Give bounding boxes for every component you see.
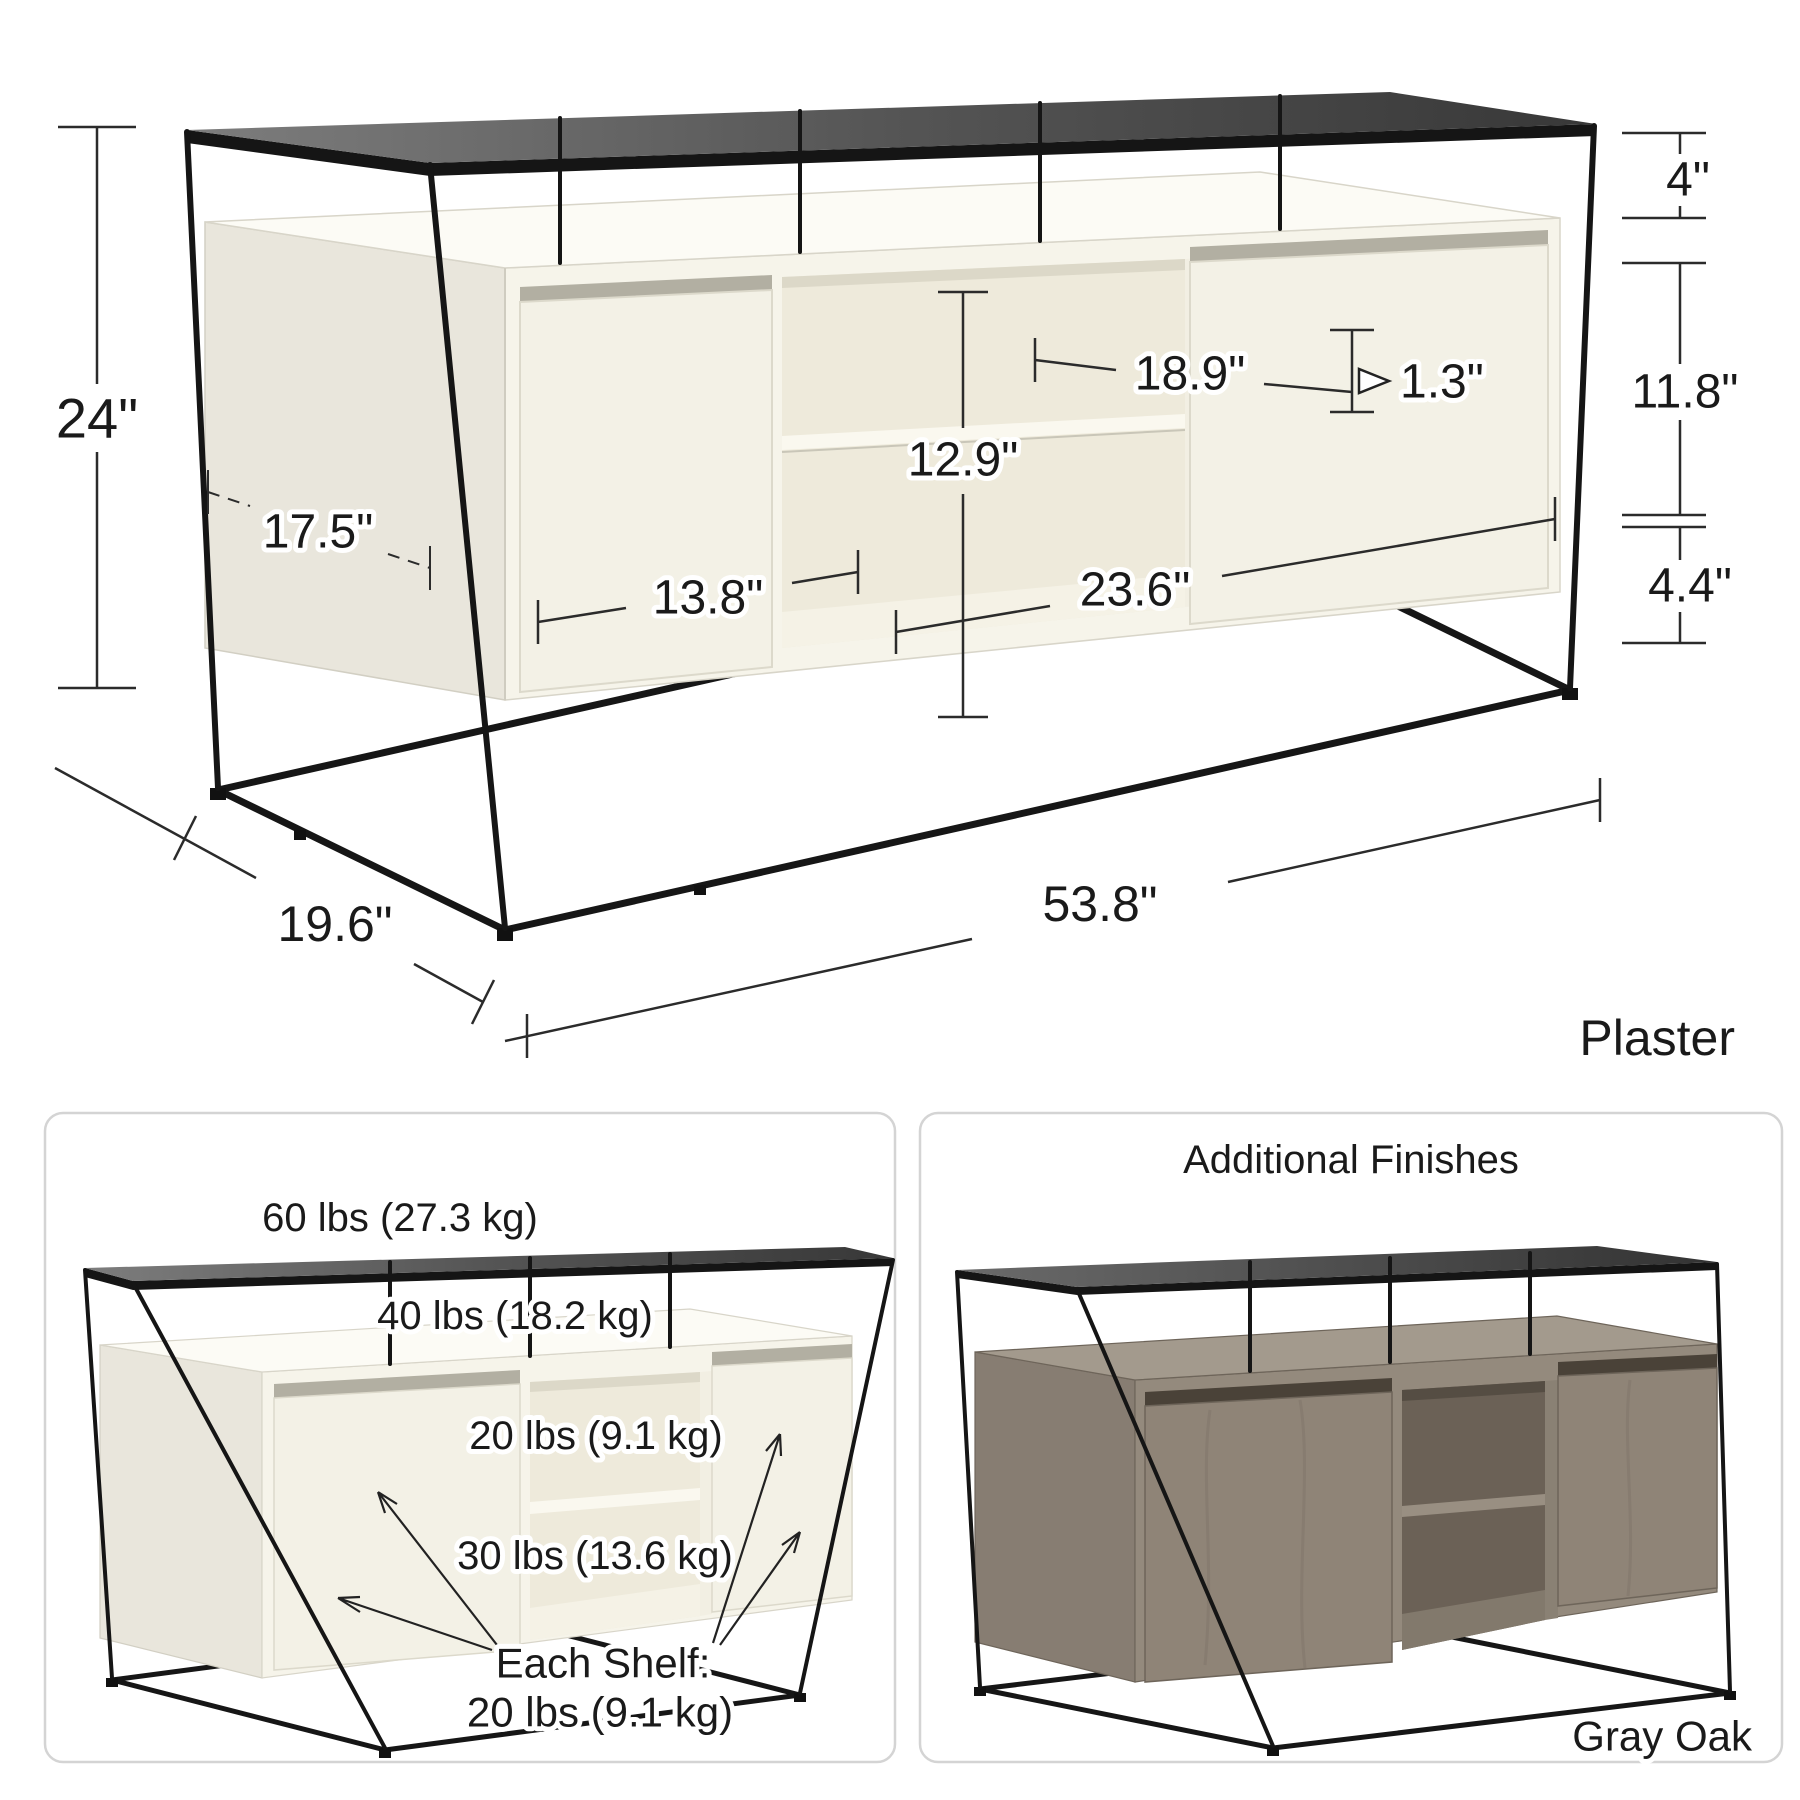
interior-height-label: 11.8" bbox=[1632, 366, 1739, 419]
dimension-sheet-canvas: 24" 4" 11.8" 4.4" 18.9" bbox=[0, 0, 1800, 1800]
product-dimension-sheet: 24" 4" 11.8" 4.4" 18.9" bbox=[0, 0, 1800, 1800]
lower-opening-width-label: 23.6" bbox=[1080, 564, 1190, 617]
overall-height-label: 24" bbox=[56, 387, 138, 450]
each-shelf-label-line2: 20 lbs (9.1 kg) bbox=[467, 1689, 733, 1736]
upper-opening-width-label: 18.9" bbox=[1135, 348, 1245, 401]
dimension-overall-height: 24" bbox=[56, 127, 138, 688]
base-clearance-label: 4.4" bbox=[1648, 560, 1732, 613]
additional-finishes-panel: Additional Finishes bbox=[920, 1113, 1782, 1762]
weight-capacity-panel: 60 lbs (27.3 kg) 40 lbs (18.2 kg) 20 lbs… bbox=[45, 1113, 895, 1762]
gray-oak-finish-label: Gray Oak bbox=[1572, 1713, 1753, 1760]
dimension-overall-width: 53.8" bbox=[505, 778, 1600, 1058]
shelf-thickness-label: 1.3" bbox=[1400, 356, 1484, 409]
top-gap-label: 4" bbox=[1666, 154, 1710, 207]
finishes-panel-title: Additional Finishes bbox=[1183, 1138, 1519, 1182]
door-width-label: 13.8" bbox=[653, 572, 763, 625]
dimension-interior-height: 11.8" bbox=[1622, 263, 1738, 515]
main-finish-label: Plaster bbox=[1579, 1010, 1735, 1066]
overall-width-label: 53.8" bbox=[1042, 876, 1157, 932]
each-shelf-label-line1: Each Shelf: bbox=[496, 1640, 711, 1687]
top-surface-weight-label: 60 lbs (27.3 kg) bbox=[262, 1196, 538, 1240]
side-depth-label: 17.5" bbox=[263, 506, 373, 559]
dimension-top-gap: 4" bbox=[1622, 133, 1710, 218]
media-shelf-weight-label: 40 lbs (18.2 kg) bbox=[377, 1294, 653, 1338]
center-opening-height-label: 12.9" bbox=[908, 434, 1018, 487]
lower-shelf-weight-label: 30 lbs (13.6 kg) bbox=[457, 1534, 733, 1578]
left-door bbox=[520, 290, 772, 692]
metal-glass-top bbox=[187, 92, 1596, 176]
main-tv-stand-diagram: 24" 4" 11.8" 4.4" 18.9" bbox=[55, 92, 1738, 1066]
overall-depth-label: 19.6" bbox=[277, 896, 392, 952]
upper-shelf-weight-label: 20 lbs (9.1 kg) bbox=[469, 1414, 722, 1458]
cabinet-body bbox=[205, 172, 1560, 700]
right-door bbox=[1190, 245, 1548, 624]
dimension-base-clearance: 4.4" bbox=[1622, 527, 1732, 643]
